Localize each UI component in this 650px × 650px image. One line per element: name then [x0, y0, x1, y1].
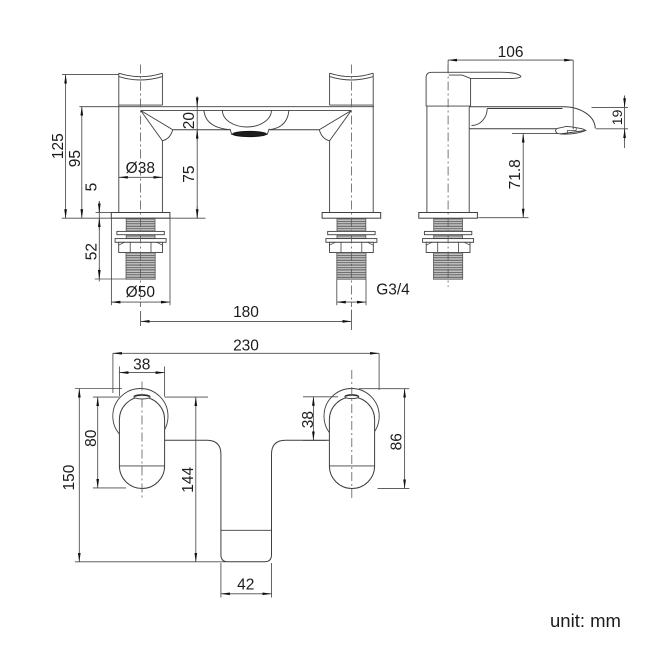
svg-text:125: 125: [50, 133, 67, 159]
svg-text:144: 144: [180, 466, 197, 492]
svg-text:86: 86: [389, 433, 406, 450]
svg-text:80: 80: [83, 429, 100, 447]
svg-text:95: 95: [67, 150, 84, 167]
svg-text:G3/4: G3/4: [376, 282, 410, 299]
svg-text:106: 106: [498, 44, 524, 61]
svg-text:Ø50: Ø50: [126, 284, 156, 301]
svg-text:unit: mm: unit: mm: [550, 610, 621, 631]
svg-text:5: 5: [83, 183, 100, 192]
svg-text:150: 150: [61, 464, 78, 490]
svg-text:230: 230: [233, 337, 259, 354]
svg-text:38: 38: [300, 411, 317, 428]
svg-text:20: 20: [181, 112, 198, 130]
svg-text:19: 19: [609, 109, 625, 125]
svg-text:52: 52: [83, 243, 100, 260]
svg-text:Ø38: Ø38: [126, 160, 155, 177]
svg-text:180: 180: [233, 304, 259, 321]
svg-text:75: 75: [181, 165, 198, 182]
svg-text:38: 38: [133, 356, 150, 373]
svg-text:71.8: 71.8: [507, 159, 524, 189]
svg-text:42: 42: [237, 576, 254, 593]
